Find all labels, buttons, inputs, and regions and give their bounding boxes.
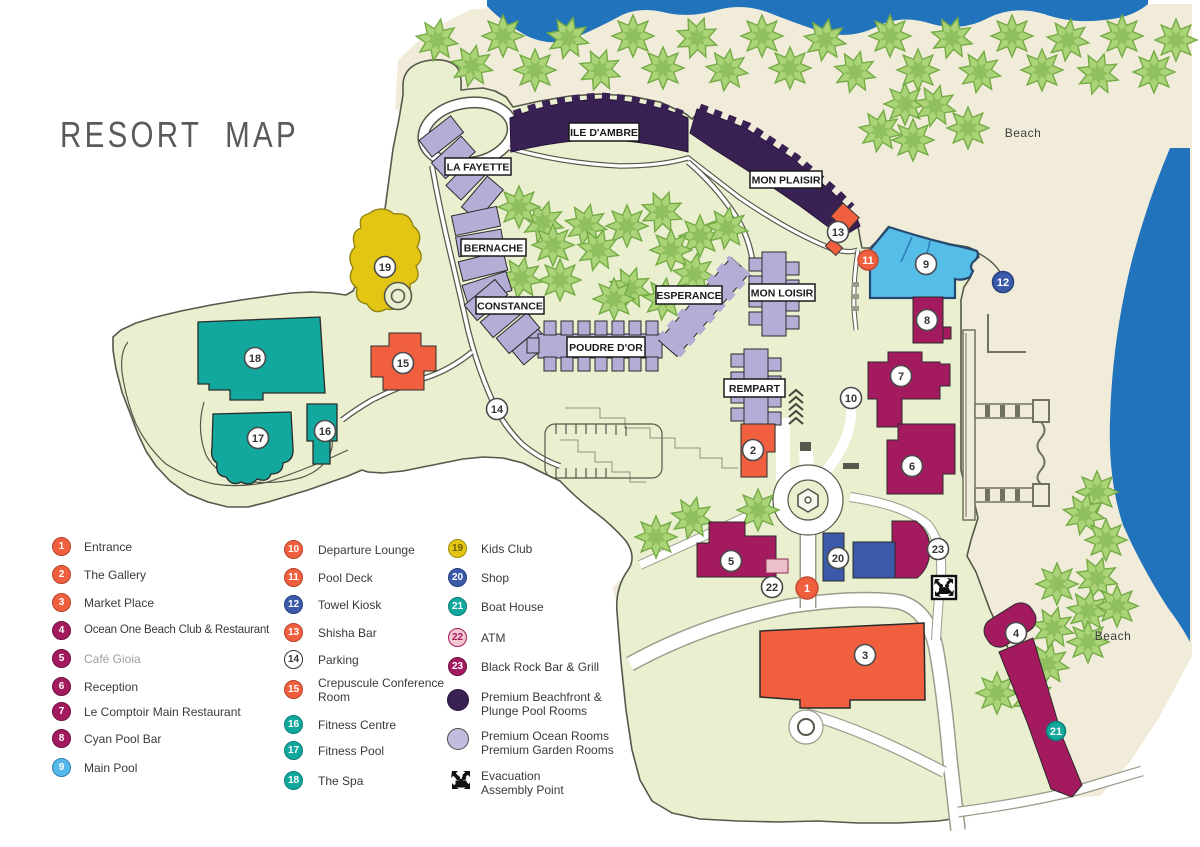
svg-text:MON LOISIR: MON LOISIR: [751, 288, 814, 300]
svg-text:2: 2: [750, 445, 756, 457]
svg-text:14: 14: [491, 404, 504, 416]
svg-text:22: 22: [766, 582, 778, 594]
svg-text:12: 12: [997, 277, 1009, 289]
svg-text:9: 9: [923, 259, 929, 271]
svg-text:20: 20: [832, 553, 844, 565]
svg-text:POUDRE D'OR: POUDRE D'OR: [569, 342, 643, 354]
svg-text:BERNACHE: BERNACHE: [464, 243, 524, 255]
svg-text:23: 23: [932, 544, 944, 556]
svg-text:ILE D'AMBRE: ILE D'AMBRE: [570, 127, 638, 139]
svg-text:10: 10: [845, 393, 857, 405]
svg-text:4: 4: [1013, 628, 1020, 640]
svg-text:ESPERANCE: ESPERANCE: [656, 290, 721, 302]
svg-text:5: 5: [728, 556, 734, 568]
svg-text:REMPART: REMPART: [729, 383, 781, 395]
svg-text:19: 19: [379, 262, 391, 274]
svg-text:MON PLAISIR: MON PLAISIR: [752, 175, 821, 187]
svg-text:CONSTANCE: CONSTANCE: [477, 301, 543, 313]
svg-text:6: 6: [909, 461, 915, 473]
svg-text:1: 1: [804, 583, 810, 595]
svg-text:LA FAYETTE: LA FAYETTE: [447, 162, 510, 174]
svg-text:15: 15: [397, 358, 409, 370]
svg-text:8: 8: [924, 315, 930, 327]
svg-text:16: 16: [319, 426, 331, 438]
svg-text:3: 3: [862, 650, 868, 662]
svg-text:18: 18: [249, 353, 261, 365]
svg-text:13: 13: [832, 227, 844, 239]
svg-text:7: 7: [898, 371, 904, 383]
svg-text:Beach: Beach: [1005, 126, 1042, 140]
svg-text:21: 21: [1050, 726, 1062, 738]
svg-text:Beach: Beach: [1095, 629, 1132, 643]
svg-text:17: 17: [252, 433, 264, 445]
svg-text:11: 11: [862, 255, 874, 267]
